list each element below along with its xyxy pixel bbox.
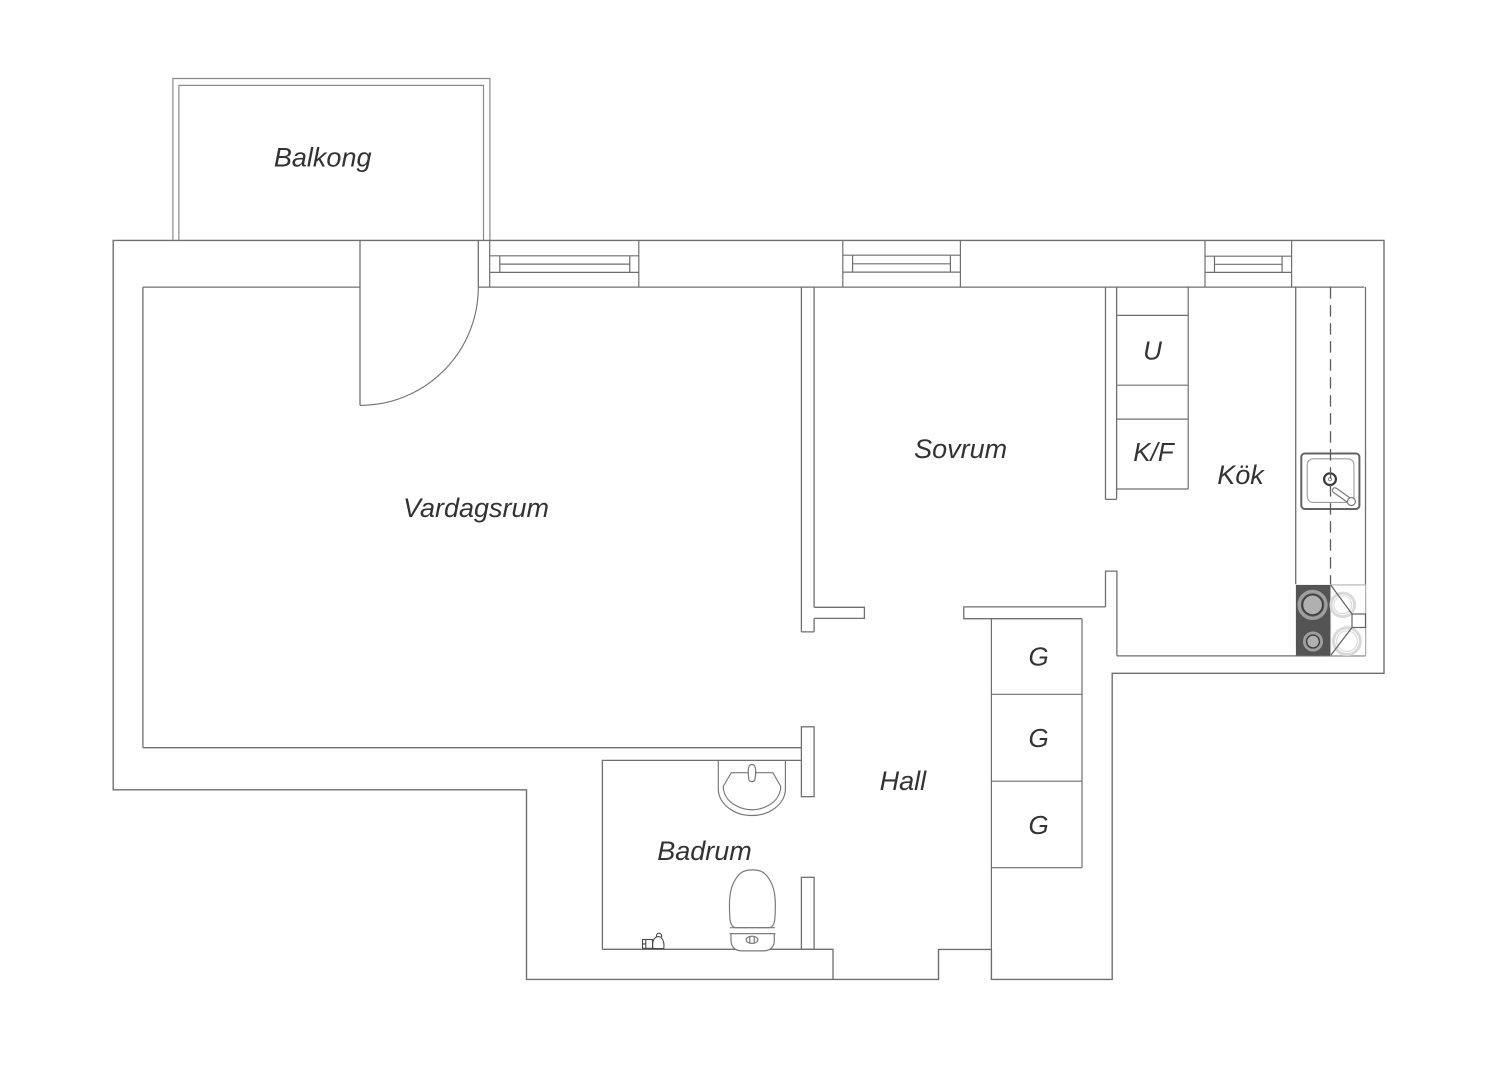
svg-text:Badrum: Badrum xyxy=(657,836,752,866)
svg-text:Hall: Hall xyxy=(880,766,928,796)
svg-text:G: G xyxy=(1028,723,1048,753)
svg-text:U: U xyxy=(1143,336,1162,366)
svg-text:Balkong: Balkong xyxy=(274,143,372,173)
svg-text:G: G xyxy=(1028,642,1048,672)
svg-text:K/F: K/F xyxy=(1133,437,1176,467)
svg-text:G: G xyxy=(1028,810,1048,840)
svg-text:Vardagsrum: Vardagsrum xyxy=(403,493,549,523)
svg-text:Kök: Kök xyxy=(1217,460,1265,490)
svg-text:Sovrum: Sovrum xyxy=(914,434,1007,464)
